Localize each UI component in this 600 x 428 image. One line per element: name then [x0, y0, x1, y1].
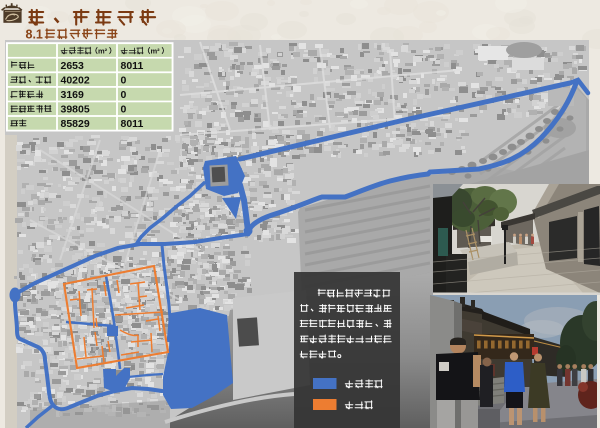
svg-text:8011: 8011: [121, 118, 144, 130]
svg-text:0: 0: [121, 75, 127, 87]
svg-text:0: 0: [121, 104, 127, 116]
svg-text:m²: m²: [98, 47, 108, 56]
svg-text:40202: 40202: [61, 75, 90, 87]
svg-text:8011: 8011: [121, 60, 144, 72]
svg-text:85829: 85829: [61, 118, 90, 130]
svg-text:2653: 2653: [61, 60, 85, 72]
svg-text:39805: 39805: [61, 104, 90, 116]
svg-text:m²: m²: [151, 47, 161, 56]
svg-text:0: 0: [121, 89, 127, 101]
svg-text:8.1: 8.1: [26, 27, 43, 41]
svg-text:3169: 3169: [61, 89, 85, 101]
